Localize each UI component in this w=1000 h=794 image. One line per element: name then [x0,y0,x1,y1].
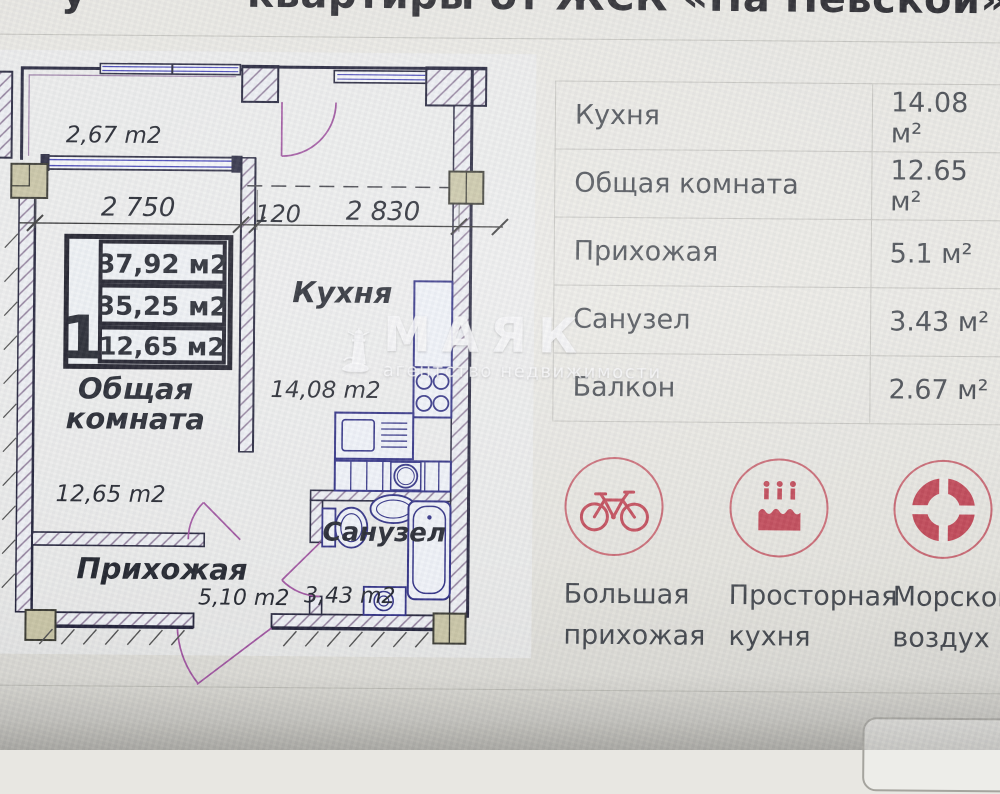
feature-label: Морской воздух [892,576,1000,659]
balcony-area-label: 2,67 m2 [66,122,162,149]
kitchen-window [334,71,428,84]
wall-bathroom-left [310,500,322,542]
table-row: Прихожая 5.1 м² [554,217,1000,289]
page-title-fragment: у [61,0,87,15]
dim-mid: 120 [255,200,301,228]
area-info-box: 1 37,92 м2 35,25 м2 12,65 м2 [61,236,231,374]
watermark-tagline: агентство недвижимости [383,360,662,383]
cake-icon [750,478,809,539]
row-label: Общая комната [555,167,871,201]
watermark: МАЯК агентство недвижимости [341,311,662,404]
bicycle-icon [579,478,649,535]
feature-label: Просторная кухня [728,575,897,658]
hall-area-label: 5,10 m2 [198,585,290,611]
lighthouse-icon [342,311,376,391]
living-area-label: 12,65 m2 [55,481,165,508]
feature-spacious-kitchen: Просторная кухня [728,458,898,658]
table-row: Общая комната 12.65 м² [555,149,1000,221]
lifebuoy-icon [908,474,979,545]
room-label-bath: Санузел [322,517,446,548]
screen-photo: у квартиры от ЖСК «На Невской» [0,0,1000,762]
balcony-window [100,64,240,75]
watermark-brand: МАЯК [383,311,662,361]
wall-pier [242,66,278,102]
feature-label: Большая прихожая [563,574,732,657]
feature-circle [564,457,664,557]
room-label-hall: Прихожая [76,551,247,586]
feature-big-hallway: Большая прихожая [563,457,733,657]
row-label: Кухня [556,99,872,133]
living-room-window [45,156,237,171]
feature-circle [729,458,829,558]
wall-living-hall [32,532,204,547]
feature-circle [893,459,993,559]
area-room: 12,65 м2 [99,332,225,362]
dim-right: 2 830 [346,197,421,228]
wall-left-cut [0,72,12,158]
table-row: Кухня 14.08 м² [556,81,1000,153]
page-title: у квартиры от ЖСК «На Невской» [0,0,1000,21]
lower-panel-corner [862,717,1000,794]
row-value: 5.1 м² [870,220,1000,288]
room-label-kitchen: Кухня [292,275,392,310]
page-title-text: квартиры от ЖСК «На Невской» [247,0,1000,23]
bath-area-label: 3,43 m2 [304,583,396,609]
dim-left: 2 750 [101,193,176,224]
row-value: 14.08 м² [872,84,1000,152]
room-label-living-2: комната [65,401,205,436]
row-value: 12.65 м² [871,152,1000,220]
feature-sea-air: Морской воздух [892,459,1000,659]
area-living-total: 35,25 м2 [97,291,228,322]
kitchen-counter [335,461,451,492]
row-label: Прихожая [555,235,871,269]
row-value: 2.67 м² [869,356,1000,424]
wall-corner-ne [426,67,486,106]
area-total: 37,92 м2 [97,249,228,280]
row-value: 3.43 м² [870,288,1000,356]
